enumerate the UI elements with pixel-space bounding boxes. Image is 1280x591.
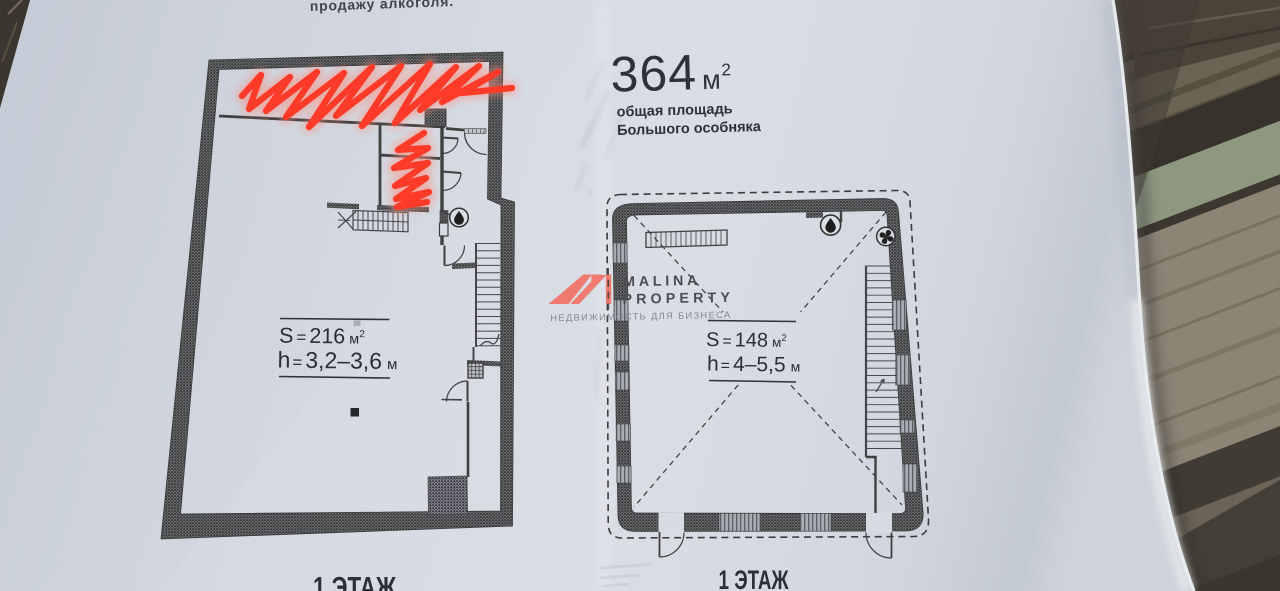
svg-text:PROPERTY: PROPERTY (622, 290, 734, 308)
svg-text:1 ЭТАЖ: 1 ЭТАЖ (719, 565, 789, 591)
svg-text:общая площадь: общая площадь (616, 101, 732, 120)
svg-text:MALINA: MALINA (623, 273, 701, 290)
svg-text:1 ЭТАЖ: 1 ЭТАЖ (313, 572, 397, 591)
